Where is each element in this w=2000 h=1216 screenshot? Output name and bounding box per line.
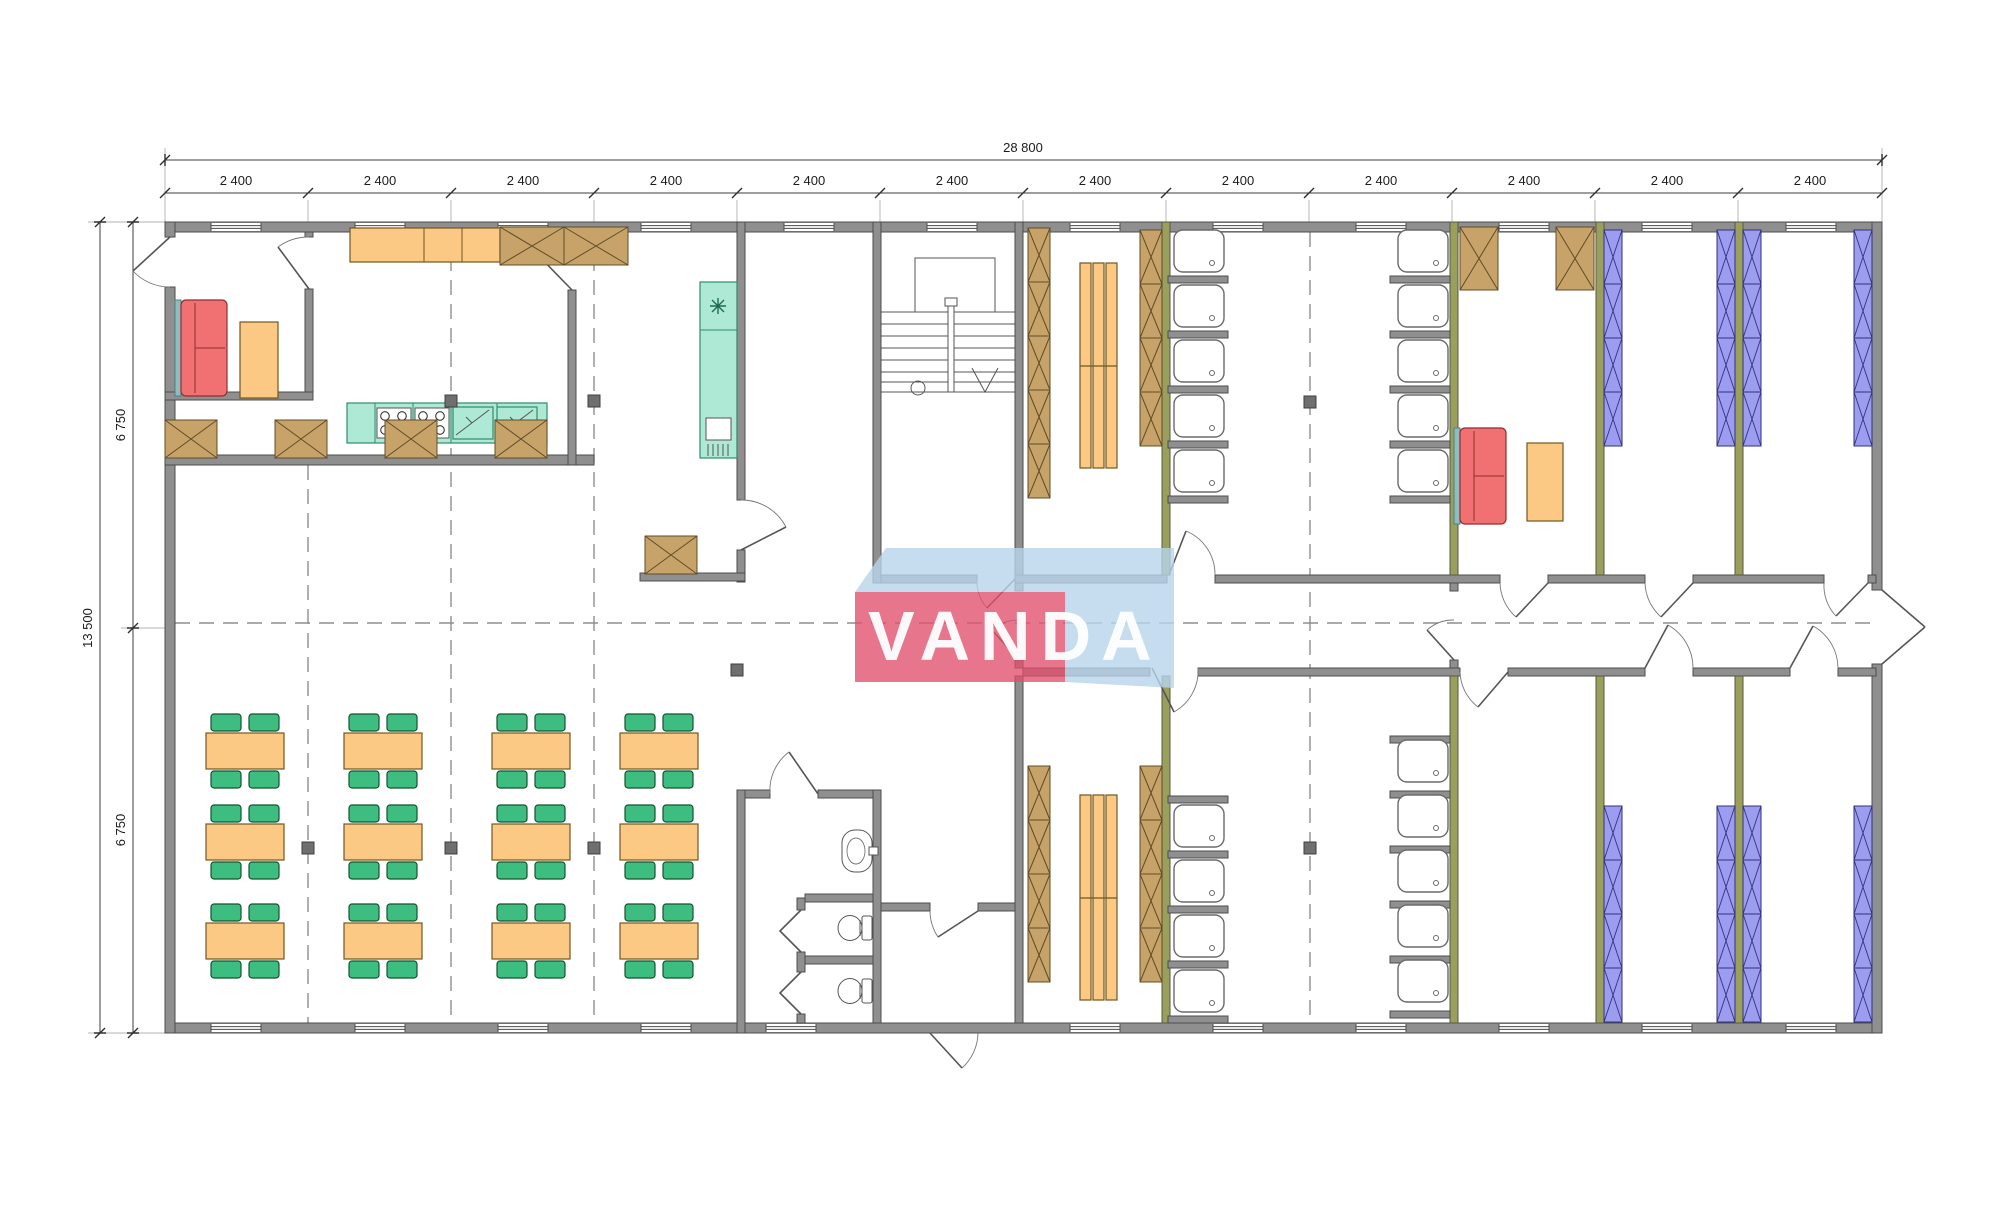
dim-bay-12: 2 400 — [1794, 173, 1827, 188]
entry-to-kitchen-door — [278, 237, 309, 289]
dim-total-width: 28 800 — [1003, 140, 1043, 155]
toilet — [838, 979, 872, 1004]
entrance-door-left — [133, 237, 170, 287]
kitchen-tall-cabinet — [500, 227, 564, 265]
window — [498, 1024, 548, 1032]
locker — [1140, 928, 1162, 982]
dim-bay-8: 2 400 — [1222, 173, 1255, 188]
kitchen-wall-cabinet — [350, 228, 500, 262]
shower-stall — [1398, 740, 1448, 782]
locker — [1140, 874, 1162, 928]
window — [1786, 1024, 1836, 1032]
bunk-bed — [1717, 806, 1735, 1022]
locker — [1028, 282, 1050, 336]
dining-table-set — [344, 904, 422, 978]
side-table — [240, 322, 278, 398]
lounge-door — [1500, 583, 1548, 617]
locker — [1028, 874, 1050, 928]
corridor-cross-door-2 — [1427, 620, 1454, 660]
freezer-snowflake-icon — [710, 298, 726, 314]
washroom-bottom — [1168, 736, 1450, 1023]
dim-bay-5: 2 400 — [793, 173, 826, 188]
hall-to-wc-door — [770, 752, 818, 794]
staircase — [881, 258, 1015, 395]
stair-stringer — [948, 300, 954, 392]
locker — [1028, 336, 1050, 390]
shower-stall — [1398, 850, 1448, 892]
dim-bay-4: 2 400 — [650, 173, 683, 188]
dining-table-set — [206, 904, 284, 978]
bunk-bed — [1854, 230, 1872, 446]
dim-bay-3: 2 400 — [507, 173, 540, 188]
locker — [1028, 766, 1050, 820]
dim-bay-7: 2 400 — [1079, 173, 1112, 188]
kitchen-tall-cabinet — [564, 227, 628, 265]
bunk-bed — [1743, 230, 1761, 446]
dim-left-upper: 6 750 — [113, 409, 128, 442]
bench — [1080, 263, 1117, 468]
dining-table-set — [620, 714, 698, 788]
wardrobe-cabinet — [275, 420, 327, 458]
watermark-blue-top — [855, 548, 1174, 592]
shower-stall — [1398, 795, 1448, 837]
dim-bay-10: 2 400 — [1508, 173, 1541, 188]
shower-stall — [1174, 230, 1224, 272]
dining-table-set — [620, 904, 698, 978]
locker — [1028, 820, 1050, 874]
window — [641, 223, 691, 231]
dim-bay-9: 2 400 — [1365, 173, 1398, 188]
shower-stall — [1174, 970, 1224, 1012]
room-bottom-door — [1460, 672, 1508, 707]
entrance-door-bottom — [930, 1033, 978, 1068]
shower-stall — [1174, 340, 1224, 382]
dim-left-lower: 6 750 — [113, 814, 128, 847]
bedroom2-bottom-door — [1790, 626, 1838, 668]
locker — [1028, 390, 1050, 444]
wc-stall-door-2 — [780, 972, 801, 1014]
locker — [1028, 228, 1050, 282]
entry-room — [175, 300, 278, 398]
bedroom2-top-door — [1824, 583, 1868, 616]
window — [641, 1024, 691, 1032]
washroom-top-door — [1169, 531, 1215, 575]
bunk-bed — [1717, 230, 1735, 446]
washroom-top — [1168, 230, 1450, 503]
vestibule-inner-door — [930, 911, 978, 937]
wc-area — [838, 830, 878, 1004]
dining-table-set — [206, 805, 284, 879]
sofa — [175, 300, 227, 396]
window — [1213, 1024, 1263, 1032]
locker — [1140, 230, 1162, 284]
wardrobe-cabinet — [1460, 227, 1498, 290]
dim-bay-11: 2 400 — [1651, 173, 1684, 188]
changing-room-top — [1028, 228, 1162, 498]
dining-table-set — [492, 904, 570, 978]
dim-bay-1: 2 400 — [220, 173, 253, 188]
window — [1356, 1024, 1406, 1032]
wardrobe-cabinet — [1556, 227, 1594, 290]
wardrobe-cabinet — [645, 536, 697, 574]
dining-table-set — [620, 805, 698, 879]
locker — [1140, 766, 1162, 820]
locker — [1140, 338, 1162, 392]
toilet — [838, 916, 872, 941]
dining-table-set — [344, 714, 422, 788]
wc-stall-door-1 — [780, 910, 801, 952]
bench — [1080, 795, 1117, 1000]
shower-stall — [1398, 450, 1448, 492]
shower-stall — [1398, 960, 1448, 1002]
dim-bay-6: 2 400 — [936, 173, 969, 188]
window — [1213, 223, 1263, 231]
locker — [1140, 284, 1162, 338]
wardrobe-cabinet — [385, 420, 437, 458]
window — [927, 223, 977, 231]
shower-stall — [1174, 450, 1224, 492]
locker — [1028, 444, 1050, 498]
bunk-bed — [1604, 806, 1622, 1022]
wardrobe-cabinet — [495, 420, 547, 458]
bunk-bed — [1854, 806, 1872, 1022]
side-table — [1527, 443, 1563, 521]
shower-stall — [1398, 340, 1448, 382]
bunk-bed — [1743, 806, 1761, 1022]
shower-stall — [1174, 860, 1224, 902]
dim-bay-2: 2 400 — [364, 173, 397, 188]
bedroom1-bottom-door — [1645, 625, 1693, 668]
window — [1786, 223, 1836, 231]
window — [784, 223, 834, 231]
window — [1642, 223, 1692, 231]
window — [1499, 223, 1549, 231]
shower-stall — [1174, 285, 1224, 327]
dining-table-set — [206, 714, 284, 788]
locker — [1028, 928, 1050, 982]
dining-table-set — [344, 805, 422, 879]
shower-stall — [1174, 915, 1224, 957]
window — [355, 1024, 405, 1032]
wardrobe-cabinet — [165, 420, 217, 458]
window — [1356, 223, 1406, 231]
shower-stall — [1398, 230, 1448, 272]
vanda-watermark: VANDA — [855, 548, 1174, 688]
dining-to-hall-door — [741, 500, 786, 550]
shower-stall — [1174, 805, 1224, 847]
changing-room-bottom — [1028, 766, 1162, 1000]
bunk-bed — [1604, 230, 1622, 446]
window — [1070, 1024, 1120, 1032]
locker — [1140, 820, 1162, 874]
dining-table-set — [492, 714, 570, 788]
locker — [1140, 392, 1162, 446]
floor-plan: 28 800 2 400 2 400 2 400 2 400 2 400 2 4… — [0, 0, 2000, 1216]
window — [1499, 1024, 1549, 1032]
bedroom1-top-door — [1645, 583, 1693, 617]
stair-start-marker — [911, 381, 925, 395]
fridge-freezer — [700, 282, 737, 458]
sofa — [1454, 428, 1506, 524]
corridor-exit-door-right — [1882, 590, 1925, 664]
dim-total-height: 13 500 — [80, 608, 95, 648]
shower-stall — [1174, 395, 1224, 437]
shower-stall — [1398, 285, 1448, 327]
lounge-room — [1454, 227, 1594, 524]
shower-stall — [1398, 395, 1448, 437]
window — [1070, 223, 1120, 231]
window — [211, 223, 261, 231]
shower-stall — [1398, 905, 1448, 947]
window — [211, 1024, 261, 1032]
window — [766, 1024, 816, 1032]
dining-table-set — [492, 805, 570, 879]
watermark-text: VANDA — [868, 597, 1162, 675]
window — [1642, 1024, 1692, 1032]
